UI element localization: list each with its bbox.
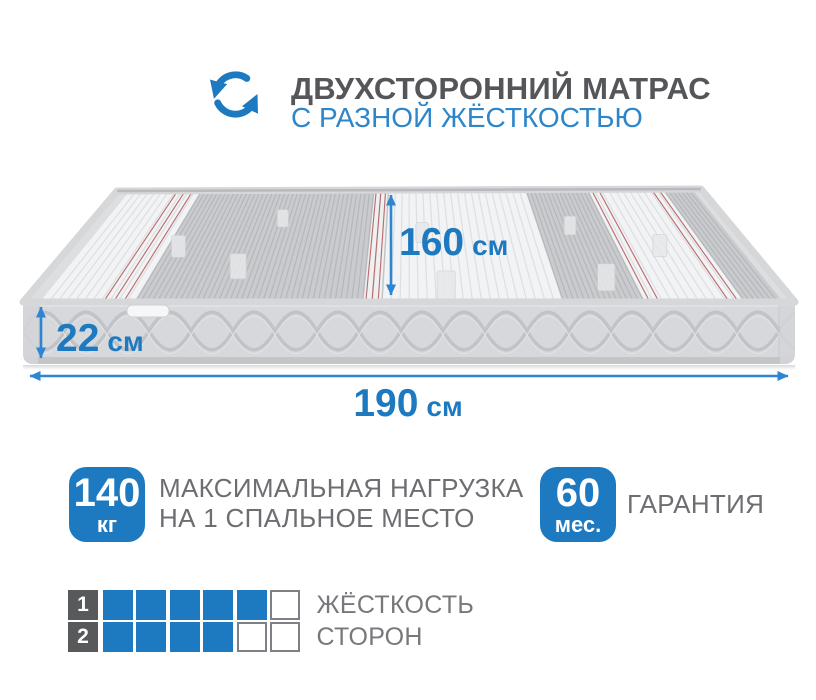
- rating-row: 2СТОРОН: [68, 622, 474, 652]
- mattress-shadow: [23, 365, 795, 370]
- fabric-detail: [598, 264, 615, 291]
- rotate-arrows-icon: [204, 65, 267, 126]
- warranty-badge: 60 мес.: [540, 467, 616, 542]
- length-unit: см: [426, 391, 462, 422]
- rating-square-filled: [136, 622, 166, 652]
- fabric-detail: [230, 254, 246, 279]
- max-load-badge: 140 кг: [69, 467, 145, 542]
- fabric-detail: [437, 271, 455, 299]
- max-load-unit: кг: [97, 514, 117, 536]
- rating-square-filled: [170, 622, 200, 652]
- mattress-illustration: [0, 150, 816, 410]
- rating-square-filled: [103, 590, 133, 620]
- rating-square-filled: [203, 622, 233, 652]
- fabric-detail: [277, 210, 288, 228]
- length-value: 190: [353, 382, 418, 425]
- width-unit: см: [472, 230, 508, 261]
- rating-square-filled: [237, 590, 267, 620]
- max-load-caption-line2: НА 1 СПАЛЬНОЕ МЕСТО: [159, 503, 524, 533]
- page-subtitle: С РАЗНОЙ ЖЁСТКОСТЬЮ: [291, 102, 643, 134]
- rating-row-number: 2: [68, 622, 98, 652]
- rating-square-filled: [203, 590, 233, 620]
- rating-row-number: 1: [68, 590, 98, 620]
- fabric-detail: [564, 216, 576, 235]
- rating-square-filled: [170, 590, 200, 620]
- thickness-dimension-label: 22см: [56, 317, 144, 361]
- warranty-caption: ГАРАНТИЯ: [627, 489, 764, 519]
- rating-square-filled: [136, 590, 166, 620]
- warranty-caption-line1: ГАРАНТИЯ: [627, 489, 764, 519]
- width-dimension-label: 160см: [399, 221, 508, 265]
- warranty-value: 60: [556, 474, 601, 512]
- rating-square-filled: [103, 622, 133, 652]
- rating-square-empty: [237, 622, 267, 652]
- rating-row: 1ЖЁСТКОСТЬ: [68, 590, 474, 620]
- warranty-unit: мес.: [555, 514, 602, 536]
- max-load-caption: МАКСИМАЛЬНАЯ НАГРУЗКА НА 1 СПАЛЬНОЕ МЕСТ…: [159, 473, 524, 533]
- mattress-infographic: ДВУХСТОРОННИЙ МАТРАС С РАЗНОЙ ЖЁСТКОСТЬЮ: [0, 0, 816, 700]
- rating-square-empty: [270, 622, 300, 652]
- rating-row-label: СТОРОН: [317, 623, 423, 652]
- rating-square-empty: [270, 590, 300, 620]
- thickness-unit: см: [107, 326, 143, 357]
- length-dimension-label: 190см: [298, 382, 518, 426]
- max-load-caption-line1: МАКСИМАЛЬНАЯ НАГРУЗКА: [159, 473, 524, 503]
- fabric-detail: [653, 235, 667, 257]
- thickness-value: 22: [56, 317, 99, 360]
- mattress-handle-tag: [127, 305, 169, 317]
- width-value: 160: [399, 221, 464, 264]
- rating-scales: 1ЖЁСТКОСТЬ2СТОРОН: [68, 590, 474, 654]
- fabric-detail: [171, 235, 185, 257]
- rating-row-label: ЖЁСТКОСТЬ: [317, 591, 475, 620]
- max-load-value: 140: [74, 474, 141, 512]
